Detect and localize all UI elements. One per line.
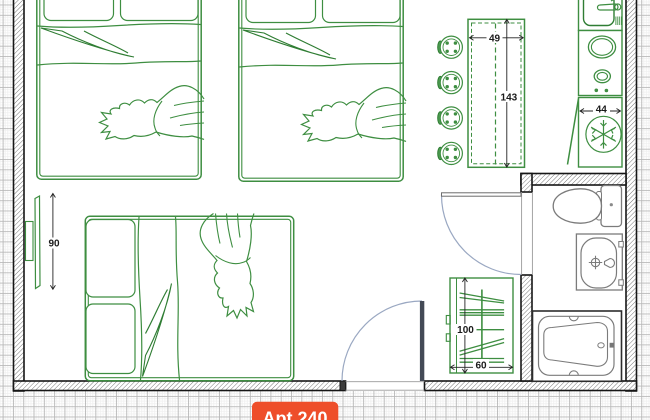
svg-text:49: 49 <box>489 33 501 44</box>
svg-text:143: 143 <box>501 92 518 103</box>
svg-text:Apt 240: Apt 240 <box>262 409 327 420</box>
svg-text:44: 44 <box>596 104 608 115</box>
svg-text:100: 100 <box>457 325 474 336</box>
svg-text:60: 60 <box>475 360 487 371</box>
svg-text:90: 90 <box>48 239 60 250</box>
